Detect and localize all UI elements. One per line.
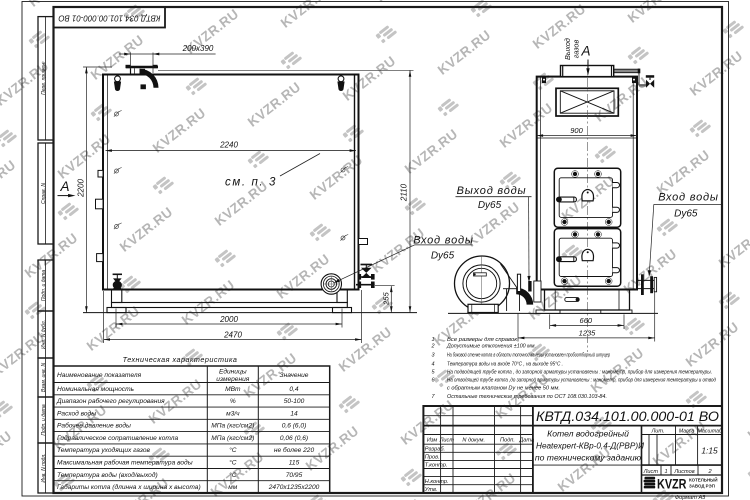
svg-text:Допустимые отклонения ±100 мм: Допустимые отклонения ±100 мм. [446,343,536,349]
svg-text:Взам. инв. N: Взам. инв. N [41,363,47,393]
svg-text:200х390: 200х390 [182,44,214,53]
svg-text:Температура воды на входе 70°: Температура воды на входе 70°С , на выхо… [447,362,563,368]
svg-text:1: 1 [664,469,667,475]
svg-text:А: А [580,44,590,59]
svg-text:Т.контр.: Т.контр. [425,463,448,469]
svg-text:2: 2 [431,343,435,349]
svg-text:Утв.: Утв. [424,487,438,493]
svg-text:Выход воды: Выход воды [457,185,527,197]
svg-text:%: % [230,398,236,405]
svg-text:°С: °С [229,446,237,454]
svg-text:1235: 1235 [579,329,597,338]
svg-text:14: 14 [290,410,298,417]
svg-text:Габариты котла (длинна х ширин: Габариты котла (длинна х ширина х высота… [57,483,201,491]
svg-text:Подп. и дата: Подп. и дата [41,404,47,436]
svg-text:Подп. и дата: Подп. и дата [41,270,47,302]
svg-text:МПа (кгс/см2): МПа (кгс/см2) [211,435,254,442]
svg-text:Котел водогрейный: Котел водогрейный [547,429,629,439]
svg-text:КВТД.034.101.00.000-01 ВО: КВТД.034.101.00.000-01 ВО [58,13,160,23]
svg-text:N докум.: N докум. [462,438,485,444]
svg-text:Dy65: Dy65 [478,200,502,211]
svg-text:Формат А3: Формат А3 [675,495,706,500]
svg-text:измерения: измерения [216,376,249,383]
svg-text:2110: 2110 [400,183,409,202]
svg-text:Dy65: Dy65 [674,208,698,219]
svg-text:KVZR: KVZR [657,477,687,492]
svg-text:255: 255 [382,292,391,306]
svg-text:Лист: Лист [643,469,659,475]
svg-text:Масштаб: Масштаб [698,429,723,435]
svg-text:На подводящей трубе котла , д: На подводящей трубе котла , до запорной … [447,368,712,375]
svg-text:Лит.: Лит. [650,429,664,435]
svg-text:1:15: 1:15 [701,446,718,456]
svg-text:2000: 2000 [219,315,238,324]
svg-text:Разраб.: Разраб. [425,447,445,453]
svg-text:м3/ч: м3/ч [226,410,240,417]
svg-text:не более 220: не более 220 [274,446,315,454]
svg-text:газов: газов [572,40,581,59]
svg-text:Инв. N дубл.: Инв. N дубл. [41,320,47,349]
svg-text:см. п. 3: см. п. 3 [225,177,277,189]
svg-text:Heatexpert-КВр-0,4-Д(РВР)И: Heatexpert-КВр-0,4-Д(РВР)И [536,441,644,450]
svg-text:Подп.: Подп. [500,438,515,444]
svg-text:Наименование показателя: Наименование показателя [57,372,142,379]
svg-text:°С: °С [229,471,237,479]
svg-text:Номинальная мощность: Номинальная мощность [57,386,135,393]
svg-text:Dy65: Dy65 [431,250,455,261]
svg-text:Вход воды: Вход воды [658,192,719,204]
svg-text:Гидравлическое сопративление к: Гидравлическое сопративление котла [57,434,178,442]
svg-text:МПа (кгс/см2): МПа (кгс/см2) [211,423,254,430]
svg-text:КВТД.034.101.00.000-01 ВО: КВТД.034.101.00.000-01 ВО [536,408,719,424]
svg-text:А: А [59,179,69,194]
svg-text:0,06 (0,6): 0,06 (0,6) [280,435,308,442]
svg-text:Лист: Лист [439,438,455,444]
svg-text:4: 4 [432,362,435,368]
svg-text:Значение: Значение [280,372,309,379]
svg-text:Остальные технические требован: Остальные технические требования по ОСТ … [447,394,607,400]
svg-text:Дата: Дата [518,438,534,444]
svg-text:0,4: 0,4 [289,386,298,393]
svg-text:Единицы: Единицы [219,368,247,376]
svg-text:Справ. N: Справ. N [41,183,47,204]
svg-text:Перв. примен.: Перв. примен. [41,62,47,95]
svg-text:2470х1235х2200: 2470х1235х2200 [268,484,320,491]
svg-text:Рабочее давление воды: Рабочее давление воды [57,422,131,430]
svg-text:70/95: 70/95 [286,472,303,479]
svg-text:Все размеры для справок: Все размеры для справок [447,337,517,343]
svg-text:Изм: Изм [427,438,438,444]
svg-text:Пров.: Пров. [425,455,440,461]
svg-text:Максимальная рабочая температу: Максимальная рабочая температура воды [57,459,193,467]
svg-text:Инв. N подл.: Инв. N подл. [41,453,47,482]
svg-text:Масса: Масса [679,429,694,435]
svg-text:МВт: МВт [225,386,241,393]
svg-text:Диапазон рабочего регулировани: Диапазон рабочего регулирования [56,397,165,405]
svg-text:по техническому заданию: по техническому заданию [535,453,642,463]
svg-text:Температура уходящих газов: Температура уходящих газов [57,446,150,454]
svg-text:КОТЕЛЬНЫЙ: КОТЕЛЬНЫЙ [689,478,718,483]
svg-text:Техническая характеристика: Техническая характеристика [123,355,238,364]
svg-text:°С: °С [229,459,237,467]
svg-text:Листов: Листов [673,469,694,475]
svg-text:2240: 2240 [219,141,238,150]
svg-text:2200: 2200 [76,179,85,198]
svg-text:Н.контр.: Н.контр. [425,479,449,485]
svg-text:660: 660 [580,316,593,325]
svg-text:2470: 2470 [223,331,242,340]
svg-text:Температура воды (вход/выход): Температура воды (вход/выход) [57,471,158,479]
svg-text:с обратным клапаном Dу не мен: с обратным клапаном Dу не менее 50 мм. [447,386,560,392]
svg-text:115: 115 [289,460,300,467]
svg-text:900: 900 [570,126,583,135]
svg-text:0,6 (6,0): 0,6 (6,0) [282,423,307,430]
svg-text:50-100: 50-100 [284,398,305,405]
svg-text:мм: мм [228,484,238,491]
svg-text:Расход воды: Расход воды [57,409,96,417]
svg-text:На отводящей трубе котла ,до з: На отводящей трубе котла ,до запорной ар… [447,376,716,383]
svg-text:ЗАВОД РЭП: ЗАВОД РЭП [689,483,715,488]
svg-text:1: 1 [432,337,435,343]
svg-text:На боковой стенке котла в обла: На боковой стенке котла в области топочн… [447,352,610,359]
